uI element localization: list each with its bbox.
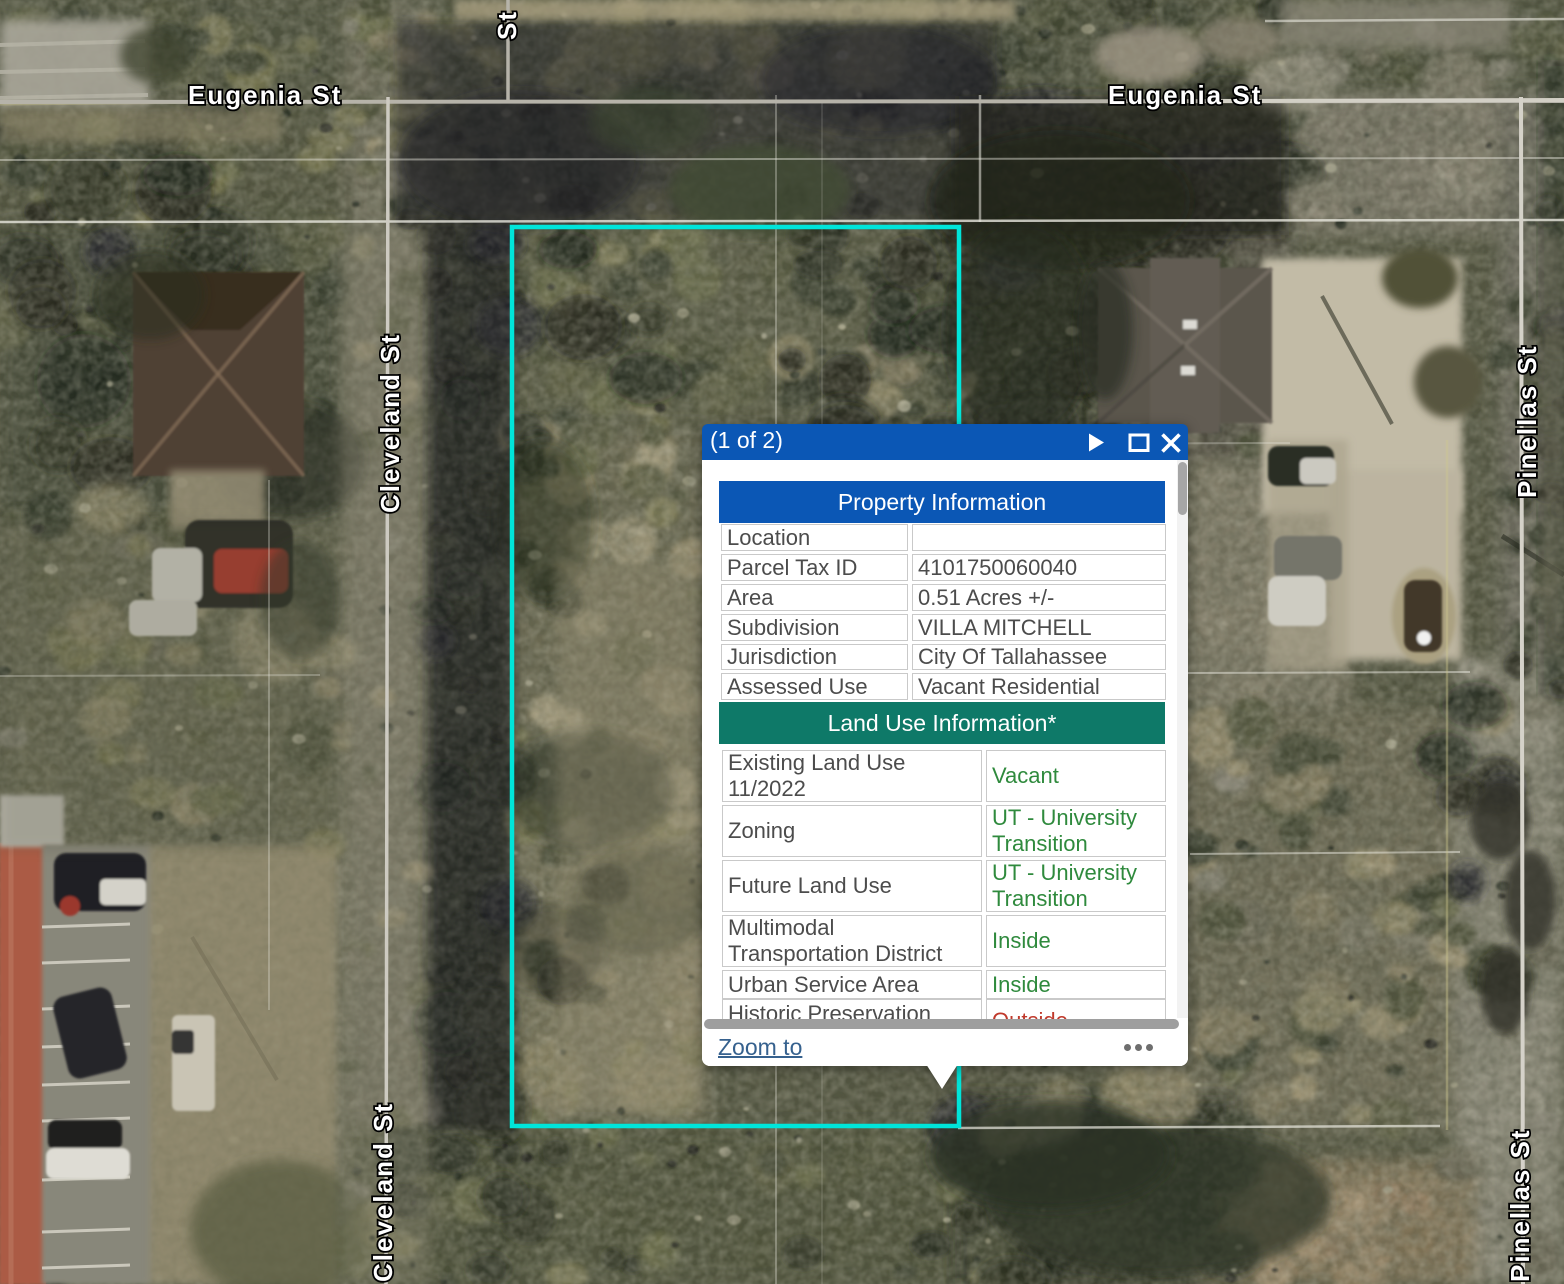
svg-text:Pinellas St: Pinellas St bbox=[1505, 1129, 1535, 1283]
svg-text:Cleveland St: Cleveland St bbox=[375, 333, 405, 513]
svg-text:Cleveland St: Cleveland St bbox=[368, 1102, 398, 1282]
svg-text:St: St bbox=[492, 10, 522, 40]
svg-text:Pinellas St: Pinellas St bbox=[1512, 345, 1542, 499]
svg-text:Eugenia St: Eugenia St bbox=[188, 80, 342, 110]
svg-text:Eugenia St: Eugenia St bbox=[1108, 80, 1262, 110]
